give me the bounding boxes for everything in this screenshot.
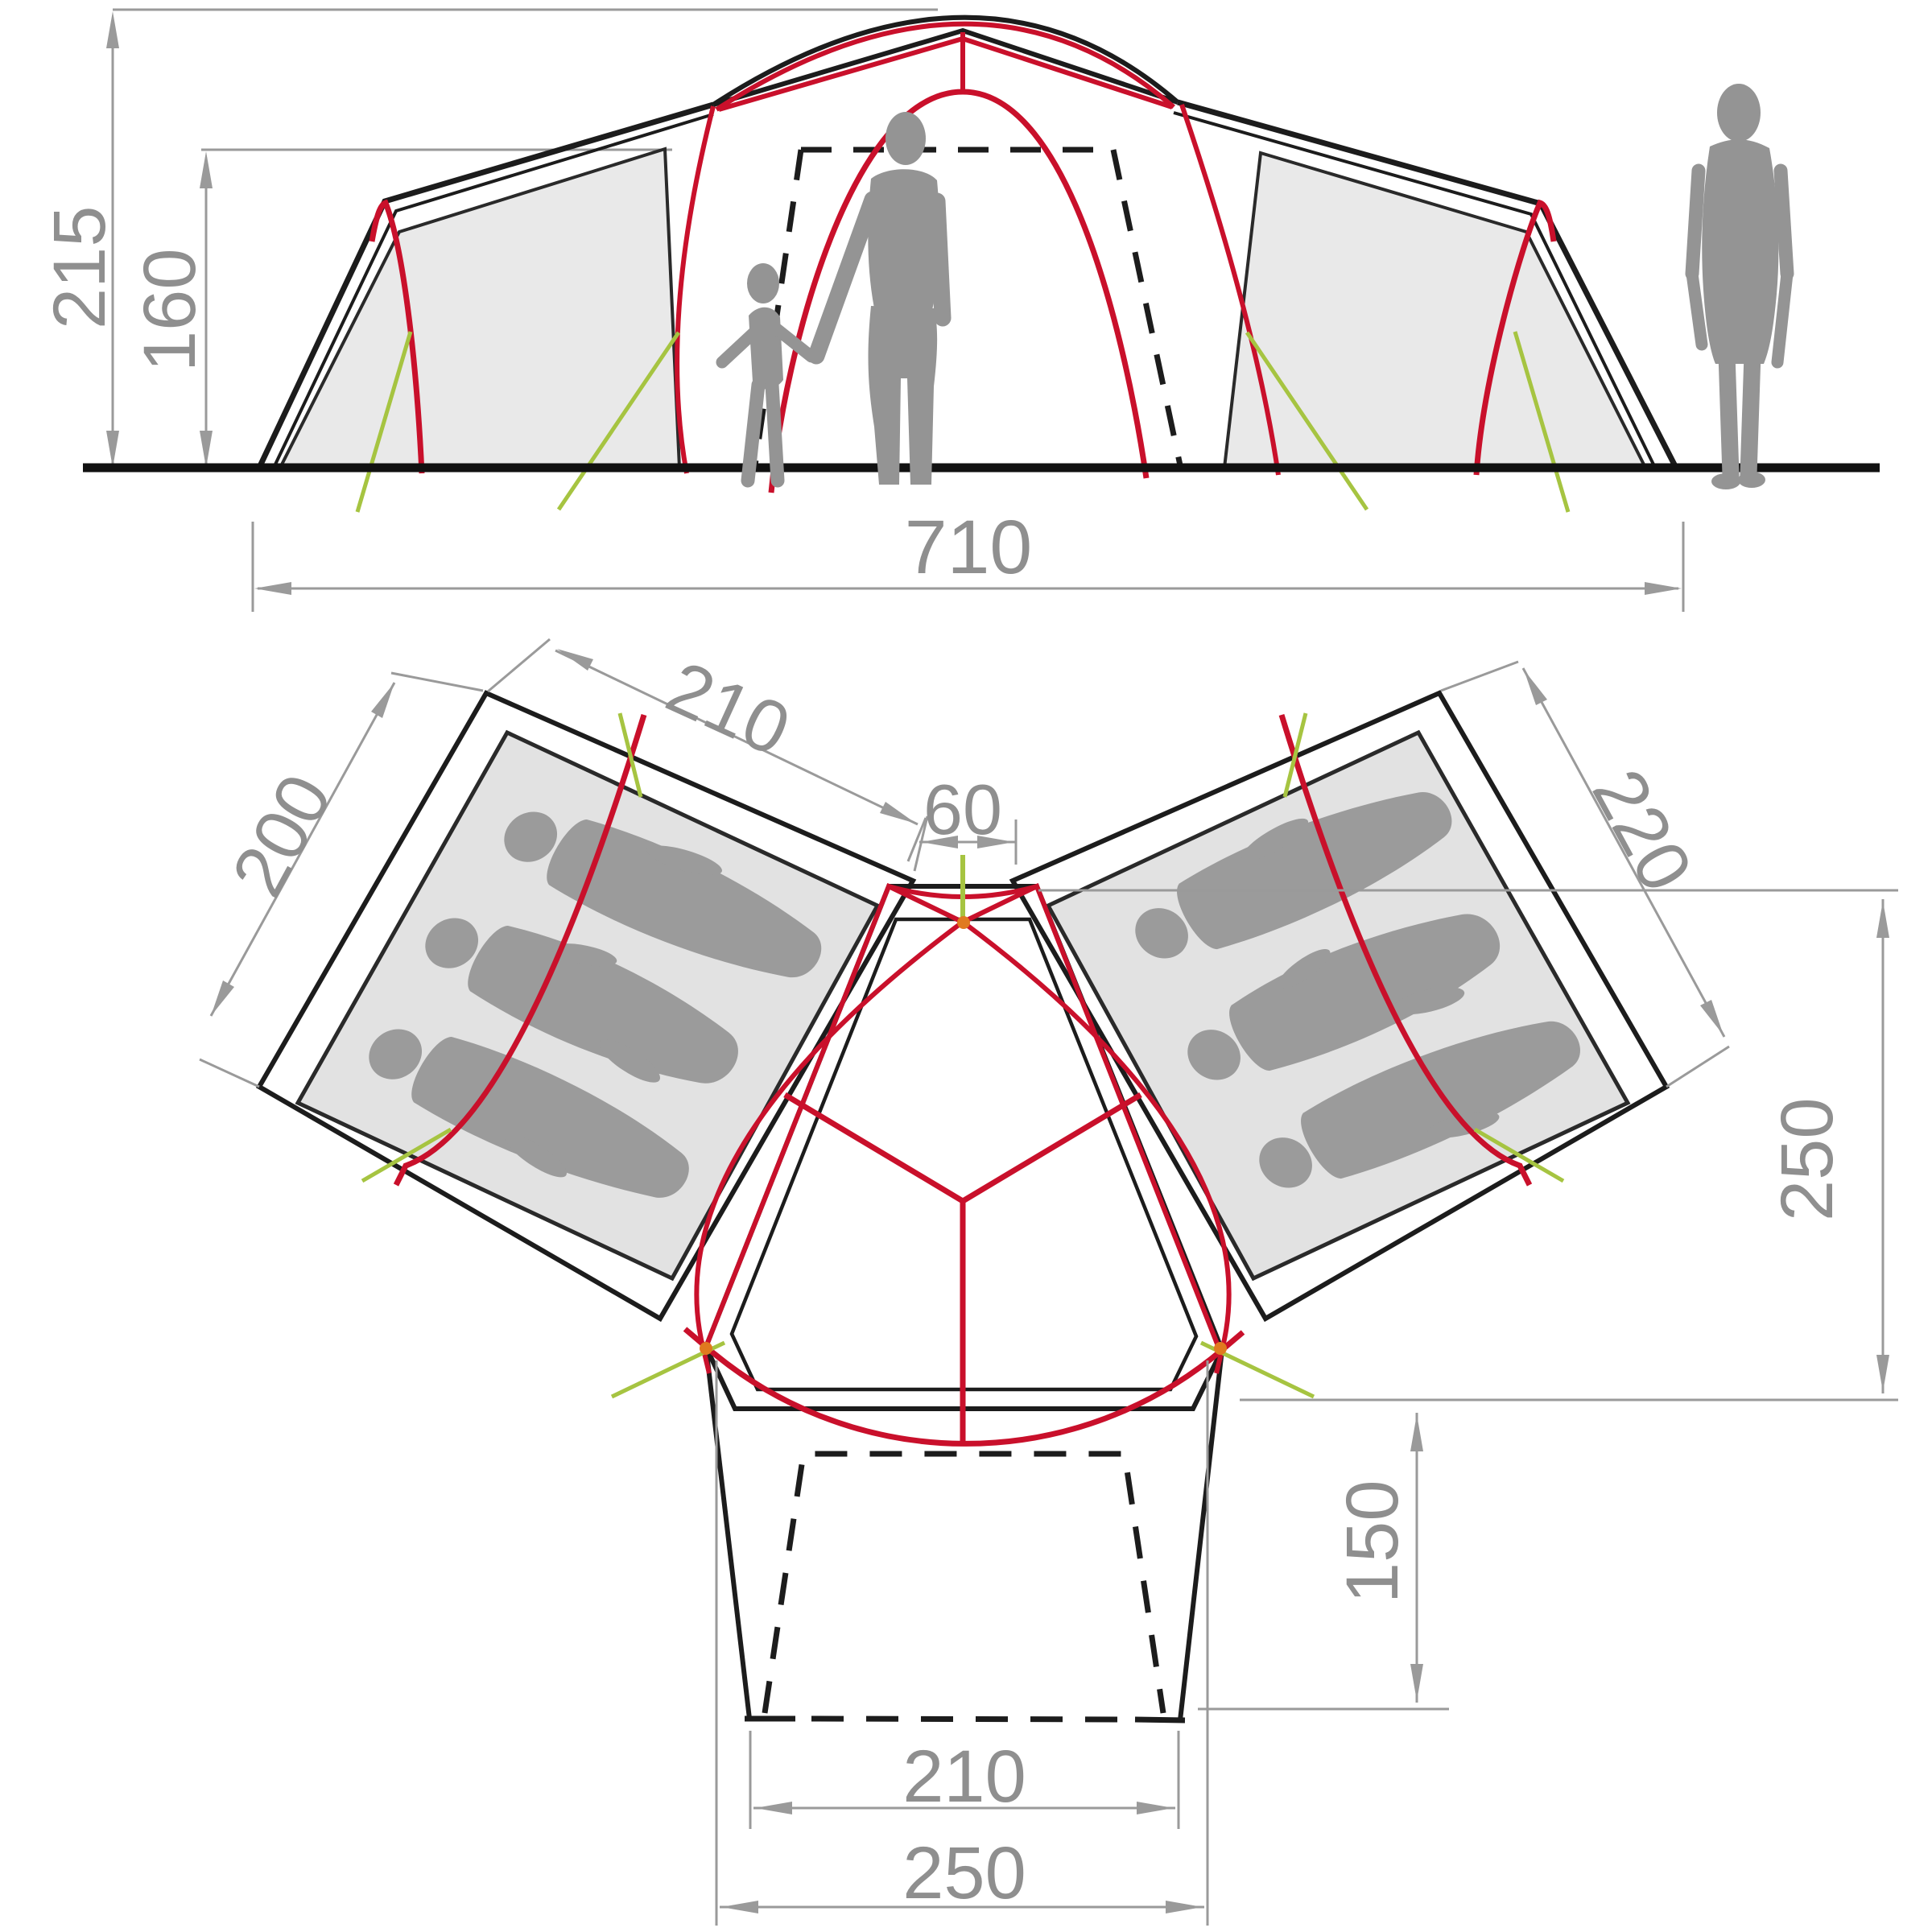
svg-text:710: 710 [905,505,1033,590]
svg-text:200: 200 [217,762,348,910]
svg-text:220: 220 [1576,757,1707,905]
svg-text:215: 215 [39,206,121,330]
svg-text:250: 250 [902,1832,1026,1914]
svg-text:160: 160 [129,249,211,373]
svg-text:210: 210 [902,1736,1026,1818]
svg-text:150: 150 [1331,1480,1414,1604]
svg-text:250: 250 [1766,1098,1848,1222]
svg-text:60: 60 [923,770,1002,849]
svg-text:210: 210 [655,646,802,771]
